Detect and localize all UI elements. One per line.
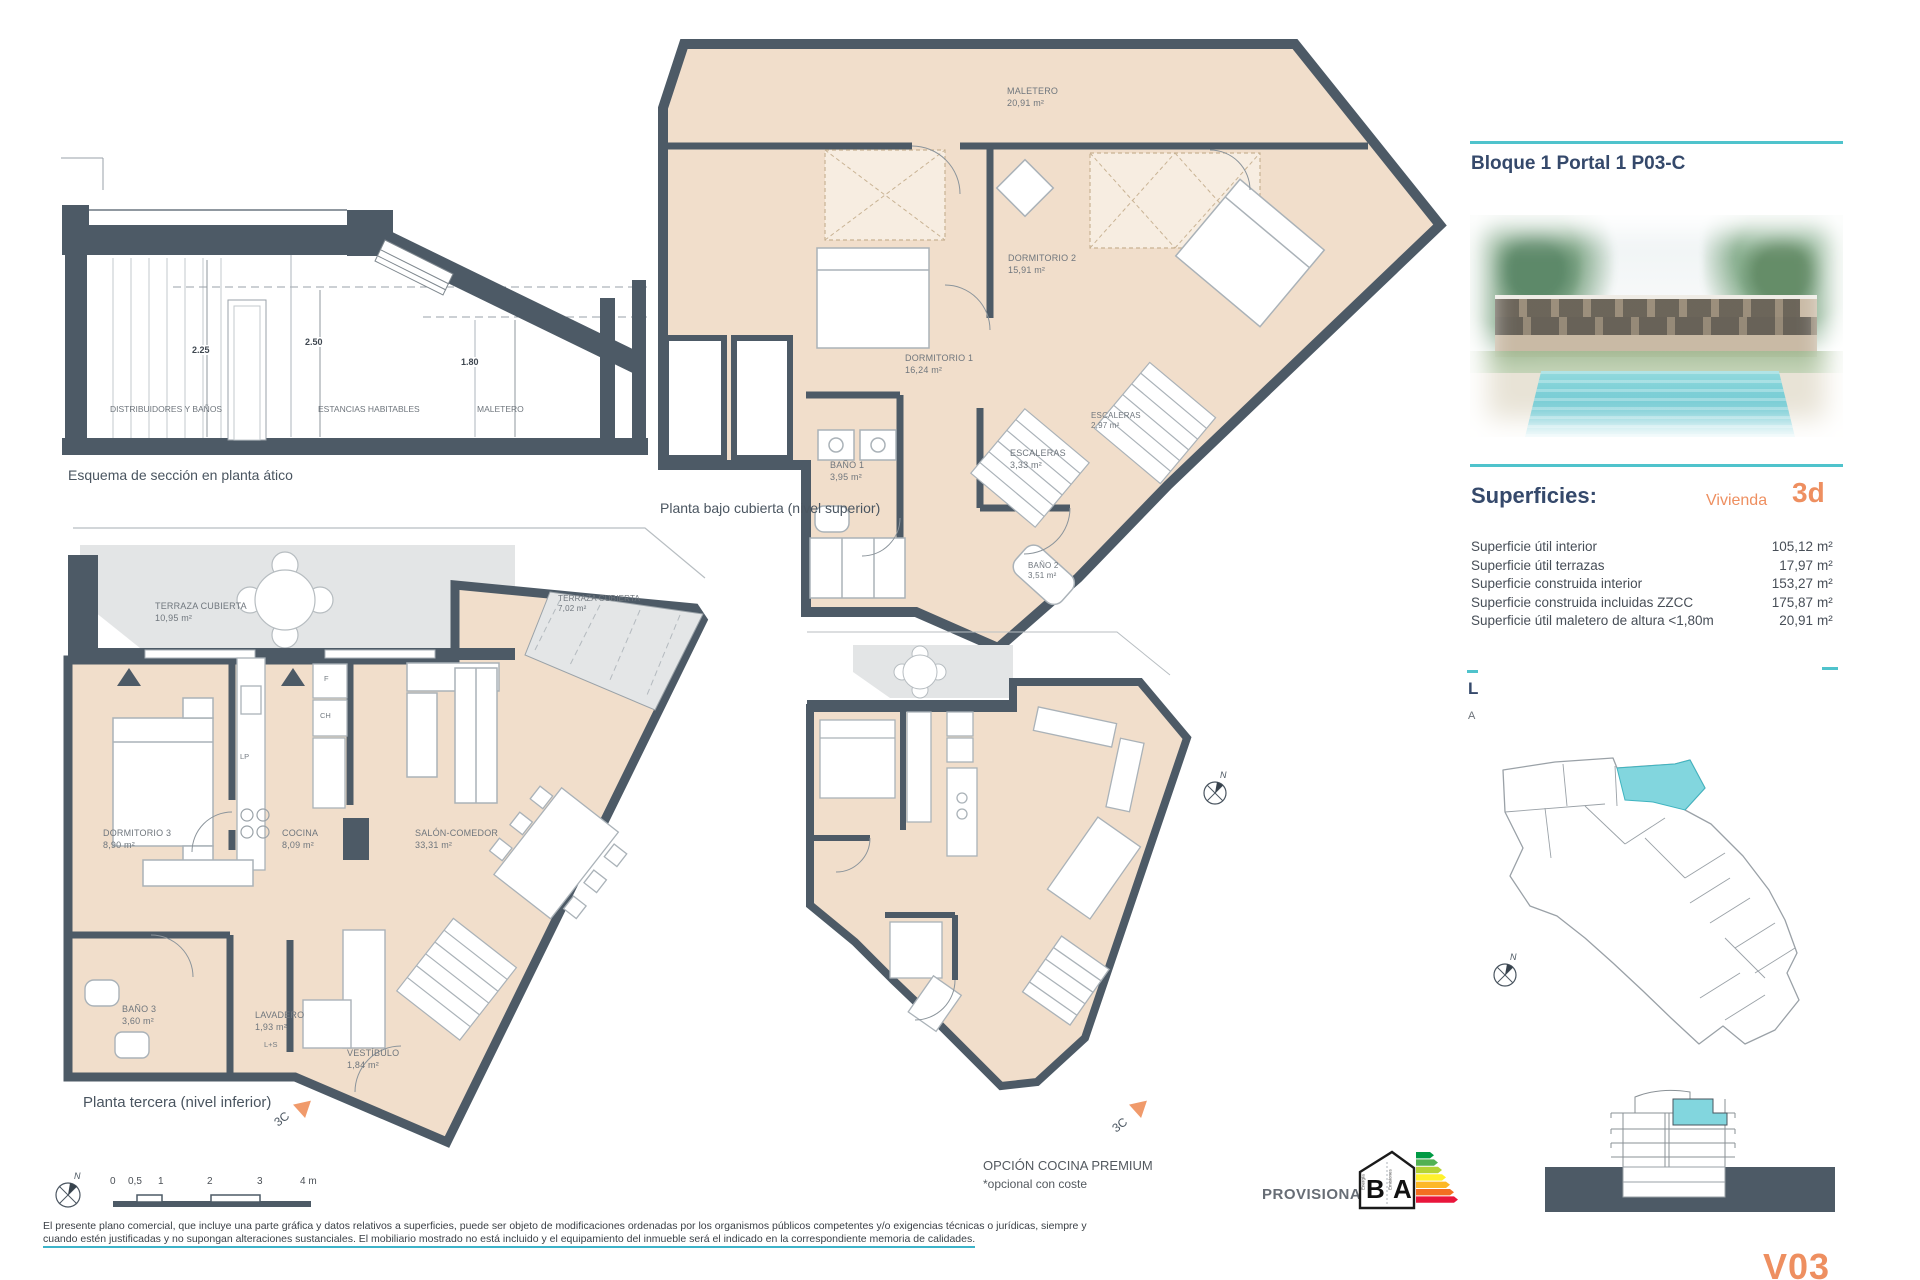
- table-row: Superficie útil maletero de altura <1,80…: [1471, 612, 1845, 630]
- clipped-text: L: [1468, 679, 1478, 699]
- room-label: DORMITORIO 3 8,90 m²: [103, 828, 171, 851]
- compass-icon: N: [52, 1168, 90, 1212]
- dim-label: 2.50: [303, 337, 325, 347]
- room-label: ESCALERAS 2,97 m²: [1091, 411, 1141, 431]
- room-label: DORMITORIO 1 16,24 m²: [905, 353, 973, 376]
- energy-letter: B: [1366, 1174, 1385, 1204]
- vivienda-value: 3d: [1792, 477, 1825, 509]
- appliance-tag: L+S: [264, 1040, 278, 1049]
- zone-label: ESTANCIAS HABITABLES: [318, 404, 420, 414]
- section-caption: Esquema de sección en planta ático: [68, 467, 293, 483]
- elevation-key: [1545, 1085, 1835, 1215]
- energy-scale-bars: [1416, 1152, 1458, 1203]
- energy-letter: A: [1393, 1174, 1412, 1204]
- room-label: DORMITORIO 2 15,91 m²: [1008, 253, 1076, 276]
- energy-axis-label: Energía: [1361, 1174, 1366, 1190]
- room-label: ESCALERAS 3,33 m²: [1010, 448, 1066, 471]
- zone-label: MALETERO: [477, 404, 524, 414]
- room-label: MALETERO 20,91 m²: [1007, 86, 1058, 109]
- energy-certificate-icon: B A Energía Emisiones: [1352, 1146, 1464, 1214]
- superficies-heading: Superficies:: [1471, 483, 1597, 509]
- scale-tick: 2: [207, 1176, 213, 1187]
- room-label: SALÓN-COMEDOR 33,31 m²: [415, 828, 498, 851]
- scale-tick: 4 m: [300, 1176, 317, 1187]
- appliance-tag: F: [324, 674, 329, 683]
- option-floor-plan: [795, 620, 1195, 1100]
- room-label: LAVADERO 1,93 m²: [255, 1010, 304, 1033]
- scale-tick: 3: [257, 1176, 263, 1187]
- appliance-tag: LP: [240, 752, 249, 761]
- disclaimer-line: El presente plano comercial, que incluye…: [43, 1220, 1087, 1233]
- room-label: BAÑO 1 3,95 m²: [830, 460, 864, 483]
- room-label: BAÑO 2 3,51 m²: [1028, 561, 1059, 581]
- table-row: Superficie construida interior 153,27 m²: [1471, 575, 1845, 593]
- table-row: Superficie útil terrazas 17,97 m²: [1471, 557, 1845, 575]
- disclaimer-line: cuando estén justificadas y no supongan …: [43, 1233, 975, 1248]
- zone-label: DISTRIBUIDORES Y BAÑOS: [110, 404, 222, 414]
- appliance-tag: CH: [320, 711, 331, 720]
- divider-dash: [1467, 670, 1478, 673]
- room-label: VESTÍBULO 1,84 m²: [347, 1048, 399, 1071]
- energy-axis-label: Emisiones: [1388, 1168, 1393, 1190]
- lower-plan-caption: Planta tercera (nivel inferior): [83, 1094, 271, 1111]
- divider: [1470, 464, 1843, 467]
- site-key-plan: [1485, 748, 1835, 1048]
- scale-tick: 0,5: [128, 1176, 142, 1187]
- clipped-text: A: [1468, 710, 1475, 722]
- sheet-version: V03: [1763, 1246, 1830, 1280]
- building-rendering: [1470, 215, 1843, 437]
- room-label: BAÑO 3 3,60 m²: [122, 1004, 156, 1027]
- room-label: COCINA 8,09 m²: [282, 828, 318, 851]
- dim-label: 1.80: [459, 357, 481, 367]
- compass-icon: N: [1200, 768, 1234, 808]
- dim-label: 2.25: [190, 345, 212, 355]
- scale-bar: [110, 1192, 320, 1210]
- north-label: N: [1220, 770, 1227, 780]
- room-label: TERRAZA CUBIERTA 7,02 m²: [558, 594, 640, 614]
- north-label: N: [74, 1171, 81, 1181]
- table-row: Superficie útil interior 105,12 m²: [1471, 538, 1845, 556]
- option-plan-subtitle: *opcional con coste: [983, 1177, 1087, 1191]
- table-row: Superficie construida incluidas ZZCC 175…: [1471, 594, 1845, 612]
- scale-tick: 0: [110, 1176, 116, 1187]
- divider-dash: [1822, 667, 1838, 670]
- unit-marker: 3C: [1109, 1115, 1130, 1135]
- option-plan-title: OPCIÓN COCINA PREMIUM: [983, 1158, 1153, 1173]
- north-label: N: [1510, 952, 1517, 962]
- scale-tick: 1: [158, 1176, 164, 1187]
- page-title: Bloque 1 Portal 1 P03-C: [1471, 153, 1685, 175]
- plan-sheet: 2.25 2.50 1.80 DISTRIBUIDORES Y BAÑOS ES…: [0, 0, 1920, 1280]
- room-label: TERRAZA CUBIERTA 10,95 m²: [155, 601, 247, 624]
- divider: [1470, 141, 1843, 144]
- compass-icon: N: [1490, 950, 1524, 990]
- vivienda-label: Vivienda: [1706, 492, 1767, 510]
